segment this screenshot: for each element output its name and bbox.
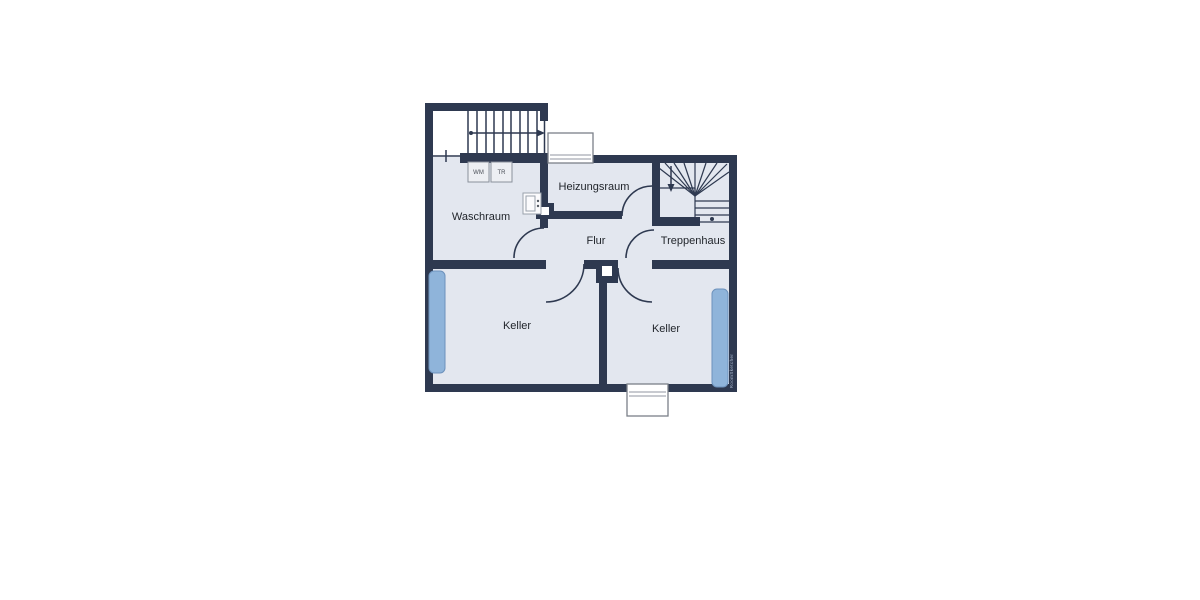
light-well-right: [712, 289, 728, 387]
room-label-flur: Flur: [587, 235, 606, 247]
under-stair-wall: [652, 217, 700, 226]
window-bottom: [627, 384, 668, 416]
room-label-keller-left: Keller: [503, 320, 531, 332]
top-wall-east: [593, 155, 737, 163]
chimney-flue: [602, 266, 612, 276]
exterior-wall-bottom: [425, 384, 737, 392]
stair-start-dot: [469, 131, 473, 135]
appliance-washing-machine: WM: [468, 162, 489, 182]
keller-top-wall-west: [425, 260, 546, 269]
room-label-treppenhaus: Treppenhaus: [661, 235, 726, 247]
basement-floorplan: WM TR Waschraum Heizungsraum Flur Treppe…: [0, 0, 1200, 600]
room-label-heizungsraum: Heizungsraum: [559, 181, 630, 193]
stair-end-dot: [710, 217, 714, 221]
keller-divider-wall: [599, 281, 607, 384]
flur-treppenhaus-wall: [652, 163, 660, 226]
main-interior-fill: [433, 163, 729, 384]
window-top: [548, 133, 593, 163]
keller-top-wall-east: [652, 260, 737, 269]
light-well-left: [429, 271, 445, 373]
stair-top-wall: [425, 103, 548, 111]
sink-fixture: [523, 193, 541, 214]
chimney-small-flue: [541, 207, 549, 215]
heizungsraum-bottom-wall: [549, 211, 622, 219]
washing-machine-label: WM: [473, 170, 484, 176]
floorplan-canvas: WM TR Waschraum Heizungsraum Flur Treppe…: [0, 0, 1200, 600]
room-label-keller-right: Keller: [652, 323, 680, 335]
dryer-label: TR: [498, 170, 507, 176]
room-label-waschraum: Waschraum: [452, 211, 510, 223]
stair-right-stub: [540, 111, 548, 121]
watermark: RoomSketcher: [729, 354, 734, 389]
appliance-dryer: TR: [491, 162, 512, 182]
